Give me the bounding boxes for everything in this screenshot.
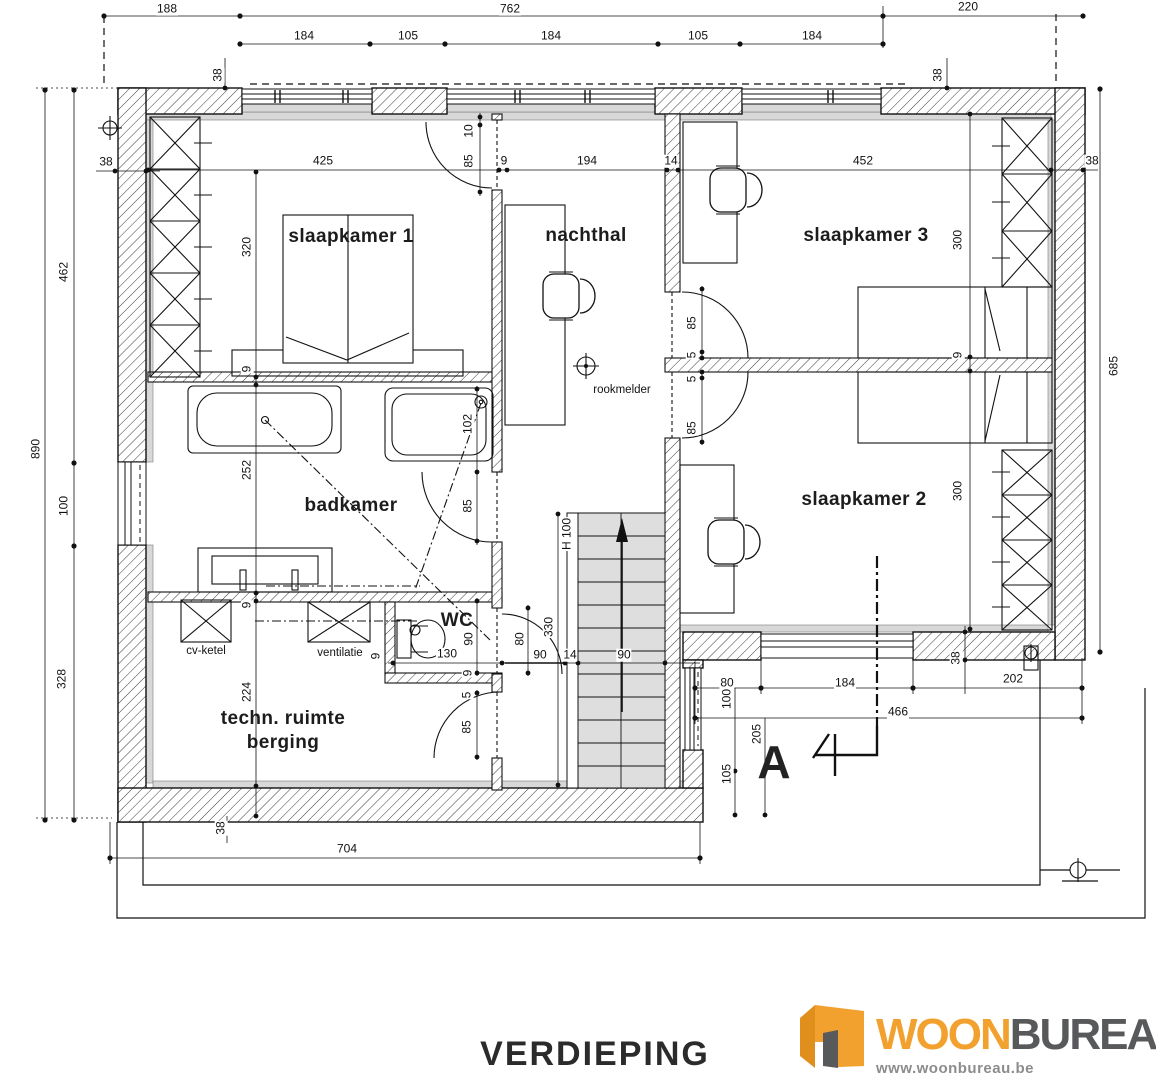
page-title: VERDIEPING bbox=[480, 1035, 710, 1074]
door-techn-ruimte bbox=[434, 692, 500, 758]
bathtub bbox=[188, 386, 341, 453]
door-badkamer bbox=[422, 472, 492, 542]
bed-slaapkamer-1 bbox=[232, 215, 463, 376]
windows bbox=[118, 89, 913, 750]
wardrobe-slaapkamer-1 bbox=[150, 117, 212, 377]
door-slaapkamer-3 bbox=[682, 292, 748, 358]
door-wc bbox=[502, 614, 562, 674]
ventilatie-box bbox=[308, 602, 370, 642]
stairs bbox=[567, 513, 665, 788]
bed-slaapkamer-2 bbox=[858, 372, 1052, 443]
vanity bbox=[198, 548, 332, 592]
logo-url: www.woonbureau.be bbox=[876, 1060, 1156, 1077]
door-slaapkamer-1 bbox=[426, 122, 492, 188]
wardrobe-slaapkamer-2 bbox=[992, 450, 1052, 630]
toilet bbox=[397, 620, 445, 658]
logo-bureau: BUREAU bbox=[1010, 1010, 1156, 1059]
logo-house-icon bbox=[792, 992, 872, 1078]
door-slaapkamer-2 bbox=[682, 372, 748, 438]
logo-woon: WOON bbox=[876, 1010, 1010, 1059]
floor-plan-page: 1887622201841051841051843838384628901003… bbox=[0, 0, 1156, 1080]
floor-plan-drawing bbox=[0, 0, 1156, 950]
roof-overhang-lines bbox=[104, 14, 1056, 88]
survey-marker-icon bbox=[1070, 858, 1086, 882]
smoke-detector-icon bbox=[573, 353, 599, 379]
woonbureau-logo: WOONBUREAU www.woonbureau.be bbox=[792, 992, 1156, 1078]
wardrobe-slaapkamer-3 bbox=[992, 118, 1052, 287]
drain-slope-lines bbox=[255, 403, 490, 640]
cv-ketel-box bbox=[181, 600, 231, 642]
bed-slaapkamer-3 bbox=[858, 287, 1052, 358]
section-cut-line bbox=[813, 556, 877, 776]
